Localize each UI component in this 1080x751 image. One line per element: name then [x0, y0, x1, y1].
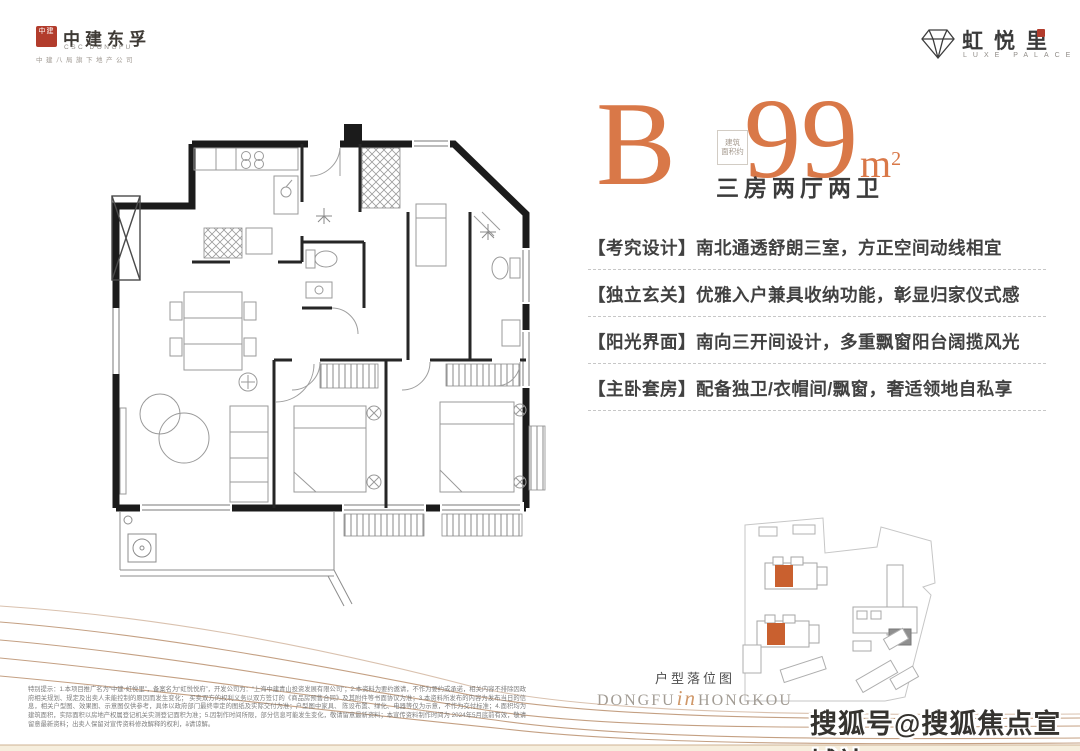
feature-item: 【考究设计】南北通透舒朗三室，方正空间动线相宜	[588, 236, 1046, 270]
feature-item: 【独立玄关】优雅入户兼具收纳功能，彰显归家仪式感	[588, 283, 1046, 317]
feature-item: 【阳光界面】南向三开间设计，多重飘窗阳台阔揽风光	[588, 330, 1046, 364]
dashed-divider	[588, 363, 1046, 364]
area-note-line1: 建筑	[718, 138, 747, 147]
feature-list: 【考究设计】南北通透舒朗三室，方正空间动线相宜 【独立玄关】优雅入户兼具收纳功能…	[588, 236, 1046, 424]
disclaimer-text: 特别提示：1.本项目推广名为“中建·虹悦里”，备案名为“虹悦悦府”，开发公司为：…	[28, 686, 526, 730]
floor-plan	[96, 110, 568, 650]
developer-logo-subtitle: CSC DONGFU	[64, 44, 133, 51]
red-seal-icon	[1037, 29, 1045, 37]
dashed-divider	[588, 410, 1046, 411]
feature-text: 【考究设计】南北通透舒朗三室，方正空间动线相宜	[588, 236, 1046, 260]
unit-type-letter: B	[596, 84, 676, 204]
feature-text: 【阳光界面】南向三开间设计，多重飘窗阳台阔揽风光	[588, 330, 1046, 354]
dashed-divider	[588, 269, 1046, 270]
area-note-line2: 面积约	[718, 147, 747, 156]
developer-seal-icon: 中建	[36, 26, 57, 47]
feature-text: 【主卧套房】配备独卫/衣帽间/飘窗，奢适领地自私享	[588, 377, 1046, 401]
feature-item: 【主卧套房】配备独卫/衣帽间/飘窗，奢适领地自私享	[588, 377, 1046, 411]
feature-text: 【独立玄关】优雅入户兼具收纳功能，彰显归家仪式感	[588, 283, 1046, 307]
poster-canvas: 中建 中建东孚 CSC DONGFU 中建八局旗下地产公司 虹悦里 LUXE P…	[0, 0, 1080, 751]
diamond-icon	[920, 28, 956, 60]
project-logo-subtitle: LUXE PALACE	[963, 52, 1076, 59]
developer-logo-tagline: 中建八局旗下地产公司	[36, 54, 136, 64]
dashed-divider	[588, 316, 1046, 317]
watermark: 搜狐号@搜狐焦点宣城站	[810, 702, 1080, 751]
unit-rooms-label: 三房两厅两卫	[716, 169, 884, 203]
